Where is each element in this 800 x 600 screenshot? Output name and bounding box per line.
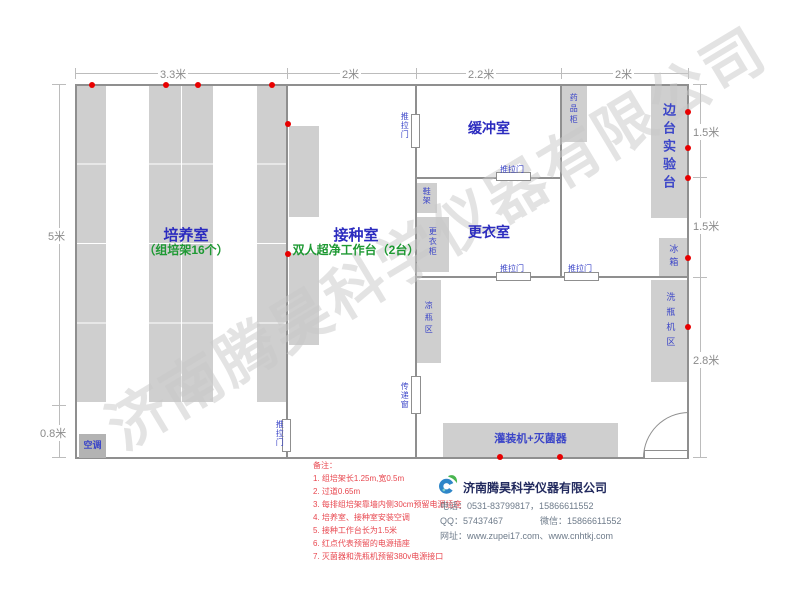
room-sub-culture: （组培架16个） xyxy=(116,241,256,258)
power-outlet-dot xyxy=(685,109,691,115)
dim-tick xyxy=(693,177,707,178)
dim-label-top-3: 2.2米 xyxy=(466,66,496,82)
wall-changing-sidebench xyxy=(560,84,562,278)
label-sliding-door: 推拉门 xyxy=(500,165,524,174)
label-bottle-washer-area: 洗瓶机区 xyxy=(665,292,675,352)
dim-line-right xyxy=(700,84,701,458)
room-label-changing: 更衣室 xyxy=(444,222,534,242)
dim-tick xyxy=(52,457,66,458)
label-sliding-door: 推拉门 xyxy=(568,264,592,273)
label-air-conditioner: 空调 xyxy=(79,440,106,450)
company-website: 网址：www.zupei17.com、www.cnhtkj.com xyxy=(440,529,613,542)
label-shoe-rack: 鞋架 xyxy=(422,187,431,205)
clean-workbench xyxy=(289,253,319,345)
company-logo-icon xyxy=(436,471,460,497)
dim-tick xyxy=(416,68,417,79)
dim-label-right-2: 1.5米 xyxy=(691,218,721,234)
power-outlet-dot xyxy=(685,145,691,151)
company-phone: 电话：0531-83799817，15866611552 xyxy=(440,499,593,512)
label-sliding-door: 推拉门 xyxy=(400,112,409,139)
wall-buffer-changing xyxy=(415,177,562,179)
company-name: 济南腾昊科学仪器有限公司 xyxy=(463,479,607,496)
label-refrigerator: 冰箱 xyxy=(668,244,678,270)
company-wechat: 微信：15866611552 xyxy=(540,514,621,527)
dim-tick xyxy=(75,68,76,79)
dim-tick xyxy=(561,68,562,79)
dim-tick xyxy=(688,68,689,79)
wall-changing-bottom xyxy=(415,276,689,278)
sliding-door xyxy=(496,272,531,281)
floor-plan-canvas: 济南腾昊科学仪器有限公司 3.3米 2米 2.2米 2米 5米 0.8米 1.5… xyxy=(0,0,800,600)
power-outlet-dot xyxy=(163,82,169,88)
dim-tick xyxy=(693,84,707,85)
dim-label-top-1: 3.3米 xyxy=(158,66,188,82)
wall-culture-inoculation xyxy=(286,84,288,459)
tissue-culture-rack xyxy=(77,85,106,403)
dim-tick xyxy=(693,457,707,458)
dim-tick xyxy=(52,84,66,85)
power-outlet-dot xyxy=(269,82,275,88)
swing-door-leaf xyxy=(644,450,688,459)
power-outlet-dot xyxy=(497,454,503,460)
power-outlet-dot xyxy=(285,121,291,127)
dim-label-top-2: 2米 xyxy=(340,66,361,82)
label-bottle-cooling-area: 凉瓶区 xyxy=(424,301,433,337)
power-outlet-dot xyxy=(195,82,201,88)
dim-tick xyxy=(693,277,707,278)
pass-through-window xyxy=(411,376,421,414)
label-pass-through-window: 传递窗 xyxy=(400,382,409,409)
label-medicine-cabinet: 药品柜 xyxy=(569,93,578,126)
dim-label-left-1: 5米 xyxy=(46,228,67,244)
company-qq: QQ：57437467 xyxy=(440,514,503,527)
label-sliding-door: 推拉门 xyxy=(275,420,284,447)
power-outlet-dot xyxy=(685,324,691,330)
label-side-lab-bench: 边台实验台 xyxy=(660,103,675,193)
wall-right xyxy=(687,84,689,459)
dim-label-left-2: 0.8米 xyxy=(38,425,68,441)
note-item: 7. 灭菌器和洗瓶机预留380v电源接口 xyxy=(313,550,461,563)
label-wardrobe: 更衣柜 xyxy=(428,227,437,257)
dim-tick xyxy=(52,405,66,406)
sliding-door xyxy=(564,272,599,281)
dim-label-right-3: 2.8米 xyxy=(691,352,721,368)
label-filling-machine: 灌装机+灭菌器 xyxy=(443,433,618,446)
sliding-door xyxy=(411,114,420,148)
power-outlet-dot xyxy=(685,175,691,181)
dim-line-left xyxy=(59,84,60,458)
power-outlet-dot xyxy=(89,82,95,88)
wall-left xyxy=(75,84,77,459)
clean-workbench xyxy=(289,126,319,217)
label-sliding-door: 推拉门 xyxy=(500,264,524,273)
dim-label-top-4: 2米 xyxy=(613,66,634,82)
power-outlet-dot xyxy=(685,255,691,261)
dim-label-right-1: 1.5米 xyxy=(691,124,721,140)
room-label-buffer: 缓冲室 xyxy=(444,118,534,138)
room-sub-inoculation: 双人超净工作台（2台） xyxy=(281,241,431,258)
power-outlet-dot xyxy=(557,454,563,460)
dim-tick xyxy=(287,68,288,79)
